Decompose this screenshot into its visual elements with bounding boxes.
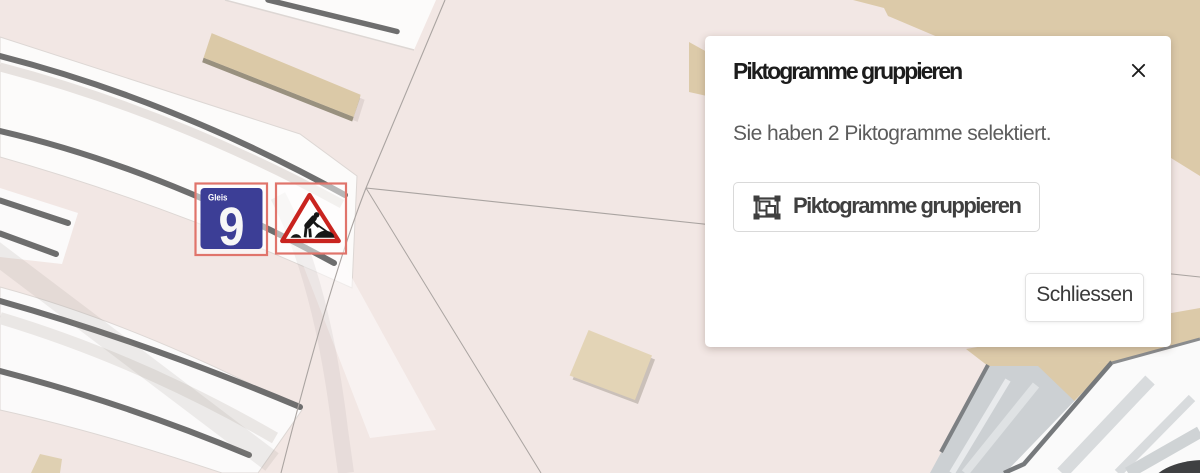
svg-text:9: 9 (219, 197, 245, 257)
